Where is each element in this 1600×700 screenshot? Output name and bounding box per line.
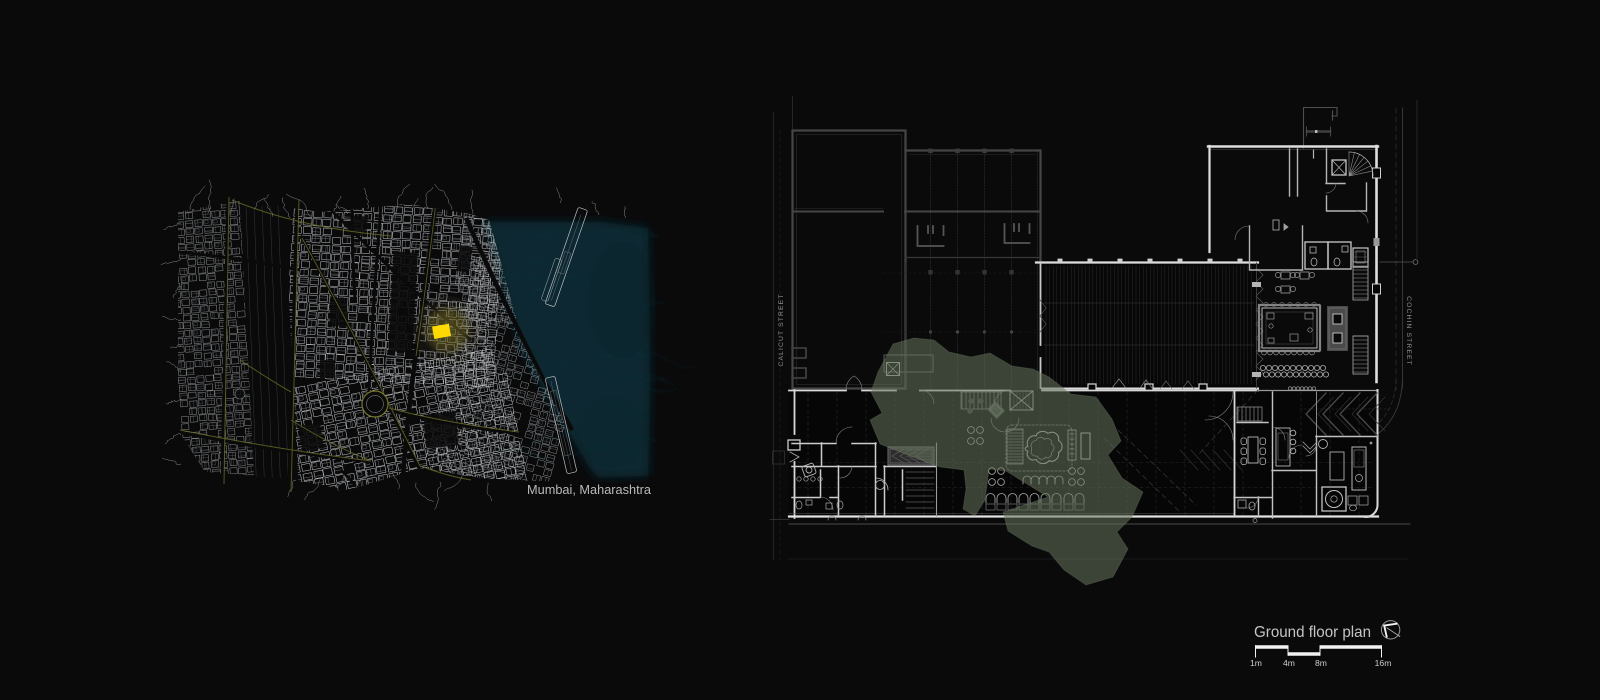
svg-text:Ground floor plan: Ground floor plan — [1254, 624, 1371, 641]
svg-text:COCHIN STREET: COCHIN STREET — [1405, 296, 1412, 366]
svg-text:CALICUT STREET: CALICUT STREET — [778, 293, 785, 366]
svg-text:8m: 8m — [1315, 658, 1327, 668]
svg-text:Mumbai, Maharashtra: Mumbai, Maharashtra — [527, 483, 651, 497]
svg-text:16m: 16m — [1375, 658, 1392, 668]
svg-text:1m: 1m — [1250, 658, 1262, 668]
svg-text:4m: 4m — [1283, 658, 1295, 668]
